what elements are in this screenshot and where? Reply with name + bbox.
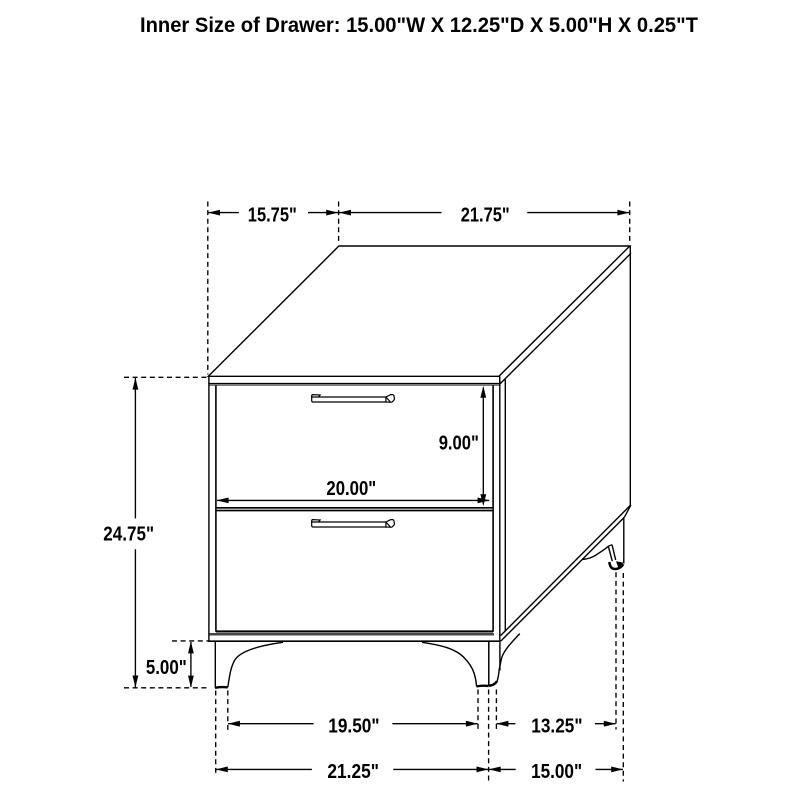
svg-text:21.25": 21.25"	[327, 761, 379, 783]
svg-text:24.75": 24.75"	[103, 523, 154, 545]
svg-text:15.00": 15.00"	[531, 761, 582, 783]
svg-text:20.00": 20.00"	[326, 478, 376, 500]
svg-text:Inner Size of Drawer: 15.00"W: Inner Size of Drawer: 15.00"W X 12.25"D …	[140, 14, 698, 37]
svg-text:15.75": 15.75"	[248, 205, 297, 227]
svg-text:9.00": 9.00"	[439, 432, 479, 454]
svg-text:21.75": 21.75"	[461, 205, 510, 227]
svg-text:13.25": 13.25"	[531, 716, 582, 738]
svg-text:19.50": 19.50"	[328, 716, 379, 738]
svg-text:5.00": 5.00"	[146, 657, 187, 679]
